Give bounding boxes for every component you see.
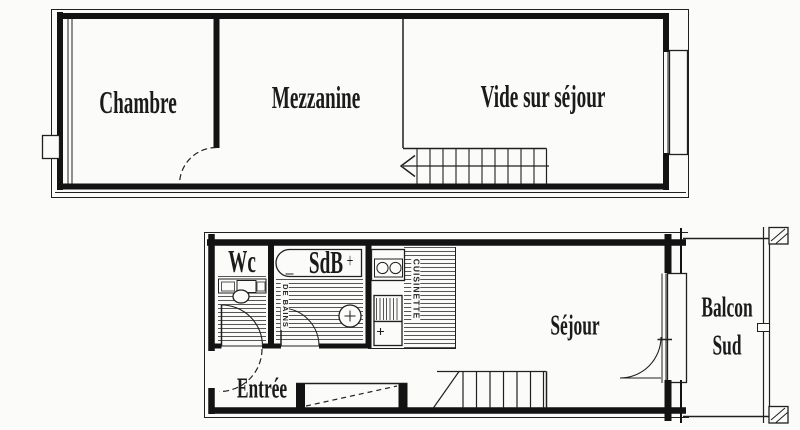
balcony-door-arc [620, 337, 661, 378]
wc-door-arc [222, 305, 263, 346]
railing-notch [758, 324, 770, 332]
toilet-bowl [233, 290, 249, 303]
entry-closet [296, 384, 408, 410]
balcony-post-top [769, 228, 788, 245]
chambre-door-arc [180, 148, 217, 185]
room-label-sdb: SdB [309, 246, 343, 278]
lower-staircase [433, 372, 547, 409]
sdb-plus-mark: + [347, 251, 354, 271]
upper-left-window-bay [43, 136, 60, 159]
room-label-sud: Sud [712, 332, 741, 361]
room-label-sejour: Séjour [550, 312, 599, 341]
room-label-mezzanine: Mezzanine [272, 81, 361, 113]
upper-right-window-bay [664, 51, 688, 155]
balcony-outline [683, 239, 770, 417]
balcony-post-bottom [769, 407, 788, 424]
toilet [219, 279, 267, 303]
floor-plan: Chambre Mezzanine Vide sur séjour Wc SdB… [0, 0, 800, 430]
upper-left-window-lines [68, 19, 72, 184]
room-label-entree: Entrée [237, 375, 287, 404]
balcony-door [620, 274, 687, 384]
wc-door [222, 305, 263, 346]
lower-level-plan [205, 227, 789, 423]
upper-staircase [401, 149, 549, 185]
balcony-door-glazing [662, 274, 666, 384]
stair-cut-diagonal [433, 372, 459, 409]
label-salle-de-bains: DE BAINS [281, 282, 289, 330]
closet-dashed-diagonal [306, 386, 397, 406]
label-cuisinette: CUISINETTE [411, 257, 420, 322]
washbasin [339, 305, 361, 327]
balcony [683, 227, 788, 423]
room-label-balcon: Balcon [701, 294, 752, 323]
fridge-hatch [376, 298, 400, 320]
plan-linework-svg [0, 0, 800, 430]
room-label-vide-sur-sejour: Vide sur séjour [481, 80, 606, 112]
balcony-door-frame [668, 274, 687, 383]
room-label-wc: Wc [228, 245, 256, 277]
room-label-chambre: Chambre [99, 86, 177, 118]
kitchen-sink [372, 250, 405, 281]
kitchen-cabinet [374, 322, 402, 346]
